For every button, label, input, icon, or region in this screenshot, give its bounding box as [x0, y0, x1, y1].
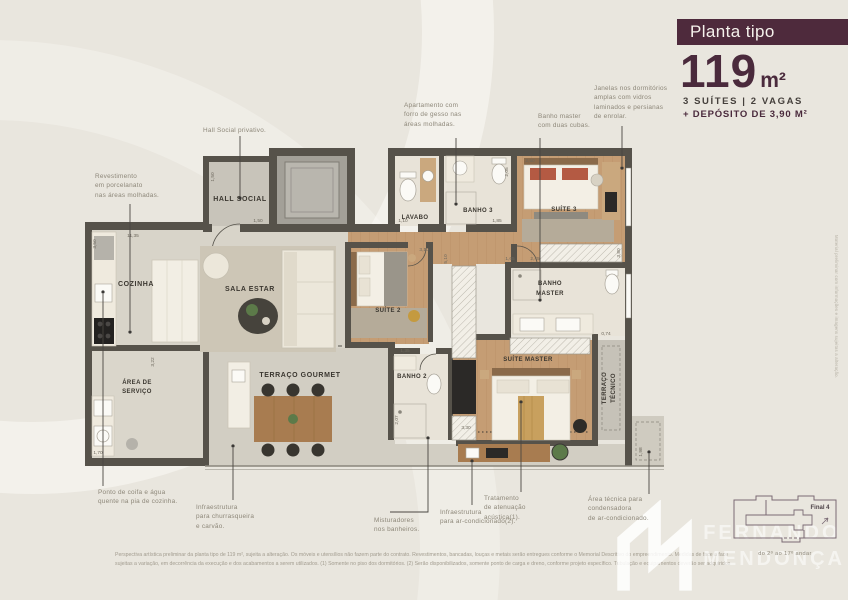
- annotation-coifa: Ponto de coifa e água quente na pia de c…: [98, 488, 177, 507]
- tv: [605, 192, 617, 212]
- dimension-label: 2,45: [530, 256, 540, 262]
- plant: [552, 444, 568, 460]
- room-label-banho-3: BANHO 3: [463, 208, 493, 214]
- dimension-label: 0,74: [601, 331, 611, 337]
- toilet: [427, 374, 441, 394]
- annotation-hall-privativo: Hall Social privativo.: [203, 126, 266, 135]
- dimension-label: 1,50: [253, 218, 263, 224]
- annotation-area-tecnica: Área técnica para condensadora de ar-con…: [588, 495, 649, 523]
- north-arrow-icon: [822, 518, 828, 524]
- room-label-terraco-tecnico: TÉCNICO: [609, 373, 617, 403]
- pouf: [573, 419, 587, 433]
- room-label-cozinha: COZINHA: [118, 281, 154, 288]
- annotation-forro-gesso: Apartamento com forro de gesso nas áreas…: [404, 101, 461, 129]
- dimension-label: 1,98: [638, 447, 644, 457]
- room-label-suite-2: SUÍTE 2: [375, 306, 401, 314]
- chair: [287, 444, 300, 457]
- dimension-label: 3,80: [616, 248, 622, 258]
- dimension-label: 3,22: [150, 357, 156, 367]
- headboard: [524, 158, 598, 165]
- pouf: [408, 310, 420, 322]
- chair: [262, 384, 275, 397]
- room-label-terraco-tecnico: TERRAÇO: [602, 372, 608, 404]
- room-label-terraco-gourmet: TERRAÇO GOURMET: [259, 372, 340, 379]
- toilet: [492, 164, 506, 184]
- plant: [246, 304, 258, 316]
- dimension-label: 11,35: [127, 233, 139, 239]
- room-label-suite-master: SUÍTE MASTER: [503, 355, 553, 363]
- room-label-area-servico: SERVIÇO: [122, 389, 152, 395]
- chair: [262, 444, 275, 457]
- annotation-misturadores: Misturadores nos banheiros.: [374, 516, 419, 535]
- dimension-label: 1,70: [93, 450, 103, 456]
- toilet: [605, 274, 619, 294]
- dimension-label: 1,85: [492, 218, 502, 224]
- armchair: [203, 253, 229, 279]
- desk-chair: [591, 174, 603, 186]
- room-label-banho-2: BANHO 2: [397, 374, 427, 380]
- room-label-sala-estar: SALA ESTAR: [225, 286, 275, 293]
- chair: [312, 444, 325, 457]
- dimension-label: 2,07: [394, 415, 400, 425]
- dimension-label: 2,50: [525, 158, 535, 164]
- key-plan-unit-label: Final 4: [810, 505, 830, 511]
- water-heater: [126, 438, 138, 450]
- annotation-banho-master-cubas: Banho master com duas cubas.: [538, 112, 590, 131]
- dimension-label: 3,10: [419, 247, 429, 253]
- dimension-label: 1,10: [398, 218, 408, 224]
- area-unit: m²: [760, 69, 786, 92]
- headboard: [492, 368, 570, 376]
- chair: [287, 384, 300, 397]
- key-plan-caption: do 2º ao 17º andar: [730, 551, 840, 557]
- living-furniture: [152, 246, 336, 352]
- dimension-label: 2,05: [504, 167, 510, 177]
- side-note: Material preliminar com informações e im…: [834, 235, 839, 378]
- dimension-label: 1,50: [210, 172, 216, 182]
- area-value: 119m²: [680, 44, 786, 98]
- room-label-banho-master: BANHO: [538, 281, 562, 287]
- grill: [486, 448, 508, 458]
- room-label-suite-3: SUÍTE 3: [551, 205, 577, 213]
- plan-type-tag: Planta tipo: [677, 19, 848, 45]
- bench: [534, 212, 588, 219]
- suites-vagas-line: 3 SUÍTES | 2 VAGAS: [683, 96, 803, 107]
- dimension-label: 5,10: [443, 254, 449, 264]
- cabinet: [152, 260, 198, 342]
- dimension-label: 3,50: [92, 239, 98, 249]
- area-number: 119: [680, 45, 757, 97]
- annotation-acustica: Tratamento de atenuação acústica(1).: [484, 494, 526, 522]
- vanity: [394, 356, 416, 370]
- chair: [312, 384, 325, 397]
- annotation-churrasqueira: Infraestrutura para churrasqueira e carv…: [196, 503, 254, 531]
- rug: [522, 219, 614, 242]
- annotation-revestimento: Revestimento em porcelanato nas áreas mo…: [95, 172, 159, 200]
- toilet: [400, 179, 416, 201]
- brand-name-line2: MENDONÇA: [703, 546, 845, 572]
- floor-plan-sheet: HALL SOCIAL COZINHA SALA ESTAR ÁREA DE S…: [0, 0, 848, 600]
- annotation-janelas: Janelas nos dormitórios amplas com vidro…: [594, 84, 667, 121]
- room-label-area-servico: ÁREA DE: [122, 379, 152, 386]
- headboard: [351, 252, 357, 306]
- dimension-label: 1,65: [505, 256, 515, 262]
- coffee-table: [238, 298, 278, 334]
- elevator: [269, 148, 355, 232]
- cooktop: [94, 318, 114, 344]
- key-plan: Final 4: [726, 491, 844, 549]
- deposito-line: + DEPÓSITO DE 3,90 M²: [683, 109, 808, 120]
- dimension-label: 1,35: [400, 348, 410, 354]
- dimension-label: 3,30: [461, 425, 471, 431]
- suite3-furniture: [522, 158, 620, 242]
